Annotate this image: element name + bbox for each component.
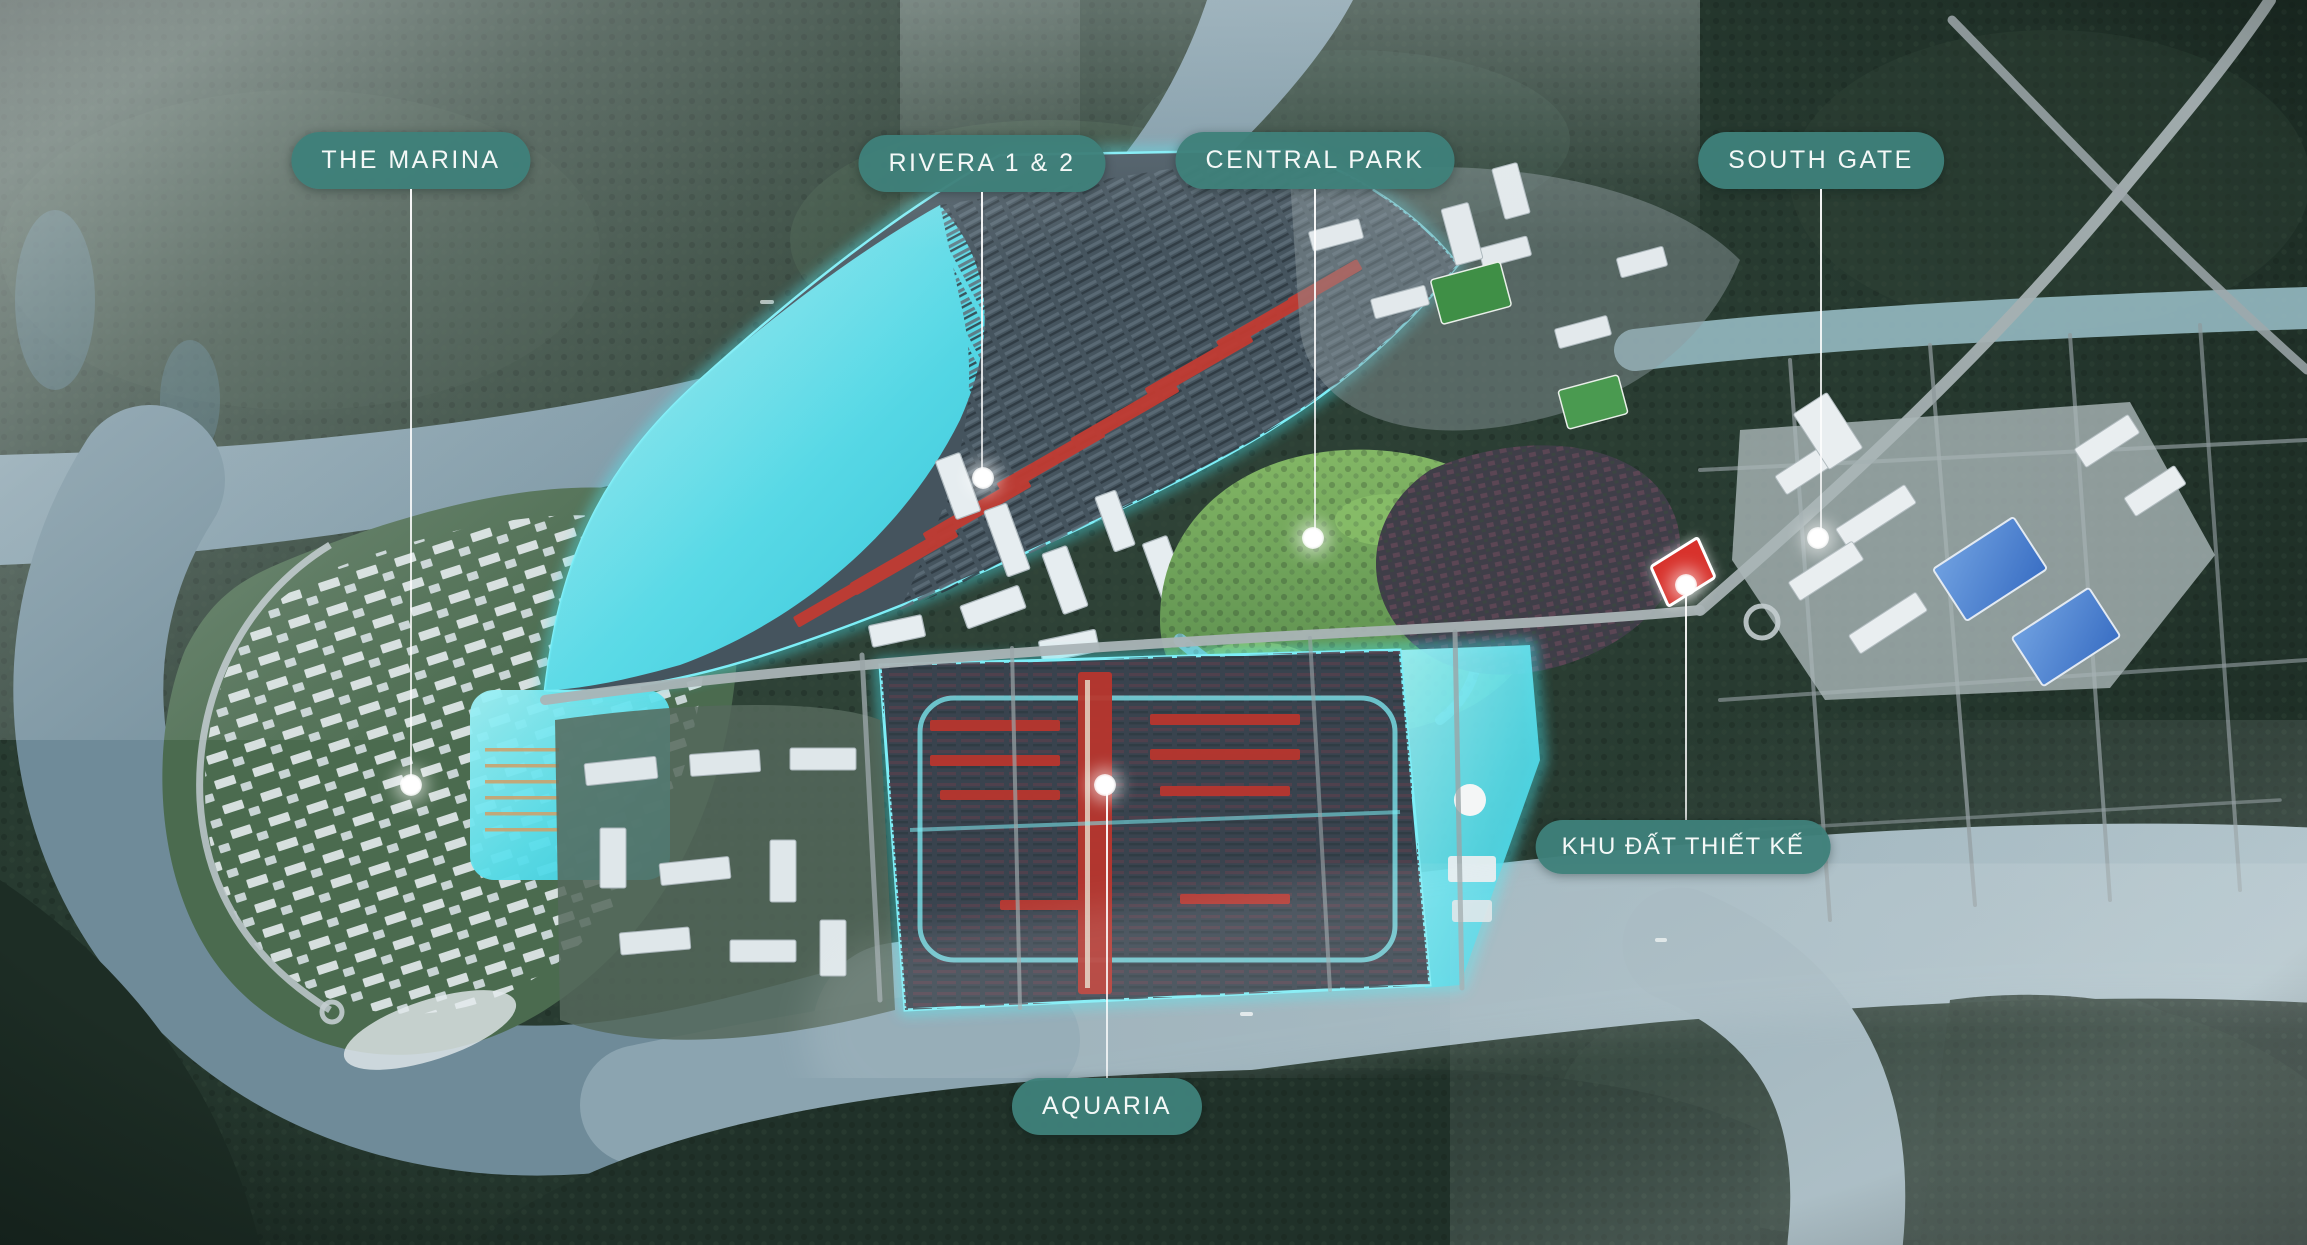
- leader-line: [1314, 189, 1316, 530]
- label-pill-south-gate[interactable]: SOUTH GATE: [1698, 132, 1944, 189]
- leader-line: [1820, 189, 1822, 530]
- leader-line: [410, 189, 412, 777]
- map-dot: [1807, 527, 1829, 549]
- map-dot: [1094, 774, 1116, 796]
- leader-line: [1106, 788, 1108, 1078]
- label-pill-aquaria[interactable]: AQUARIA: [1012, 1078, 1202, 1135]
- label-pill-rivera-1-2[interactable]: RIVERA 1 & 2: [858, 135, 1105, 192]
- map-dot: [972, 467, 994, 489]
- map-dot: [1302, 527, 1324, 549]
- masterplan-page: THE MARINA RIVERA 1 & 2 CENTRAL PARK SOU…: [0, 0, 2307, 1245]
- leader-line: [1685, 588, 1687, 820]
- leader-line: [981, 192, 983, 471]
- map-dot: [400, 774, 422, 796]
- label-pill-khu-dat-thiet-ke[interactable]: KHU ĐẤT THIẾT KẾ: [1536, 820, 1831, 874]
- label-pill-the-marina[interactable]: THE MARINA: [291, 132, 530, 189]
- label-pill-central-park[interactable]: CENTRAL PARK: [1176, 132, 1455, 189]
- map-dot: [1675, 574, 1697, 596]
